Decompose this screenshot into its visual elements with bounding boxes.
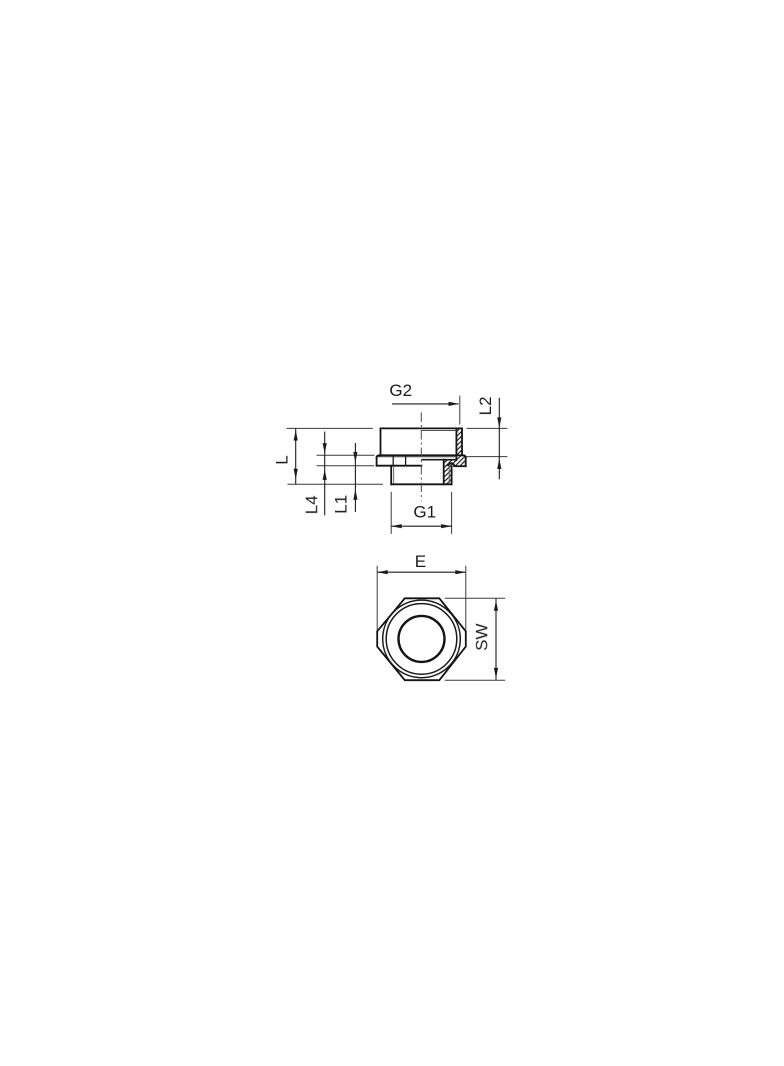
svg-text:G2: G2 [389, 381, 412, 400]
svg-text:E: E [415, 552, 426, 571]
svg-text:G1: G1 [413, 503, 436, 522]
svg-text:L4: L4 [302, 495, 321, 514]
svg-text:SW: SW [472, 624, 491, 651]
svg-text:L: L [273, 455, 292, 464]
svg-text:L2: L2 [476, 396, 495, 415]
svg-text:L1: L1 [332, 495, 351, 514]
